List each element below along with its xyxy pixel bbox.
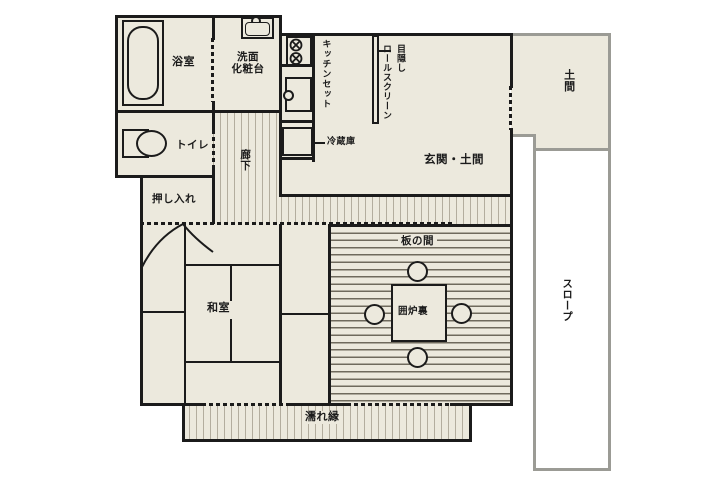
tatami-line-h2	[184, 361, 280, 363]
wall-kitchen-shelf3	[281, 157, 315, 160]
label-screen-line1: 目隠し	[393, 44, 407, 120]
label-nureen: 濡れ縁	[302, 411, 343, 424]
fridge-pointer-line	[313, 142, 325, 144]
label-slope: スロープ	[561, 278, 573, 322]
wall-bath-toilet	[115, 110, 281, 113]
opening-nureen-west	[202, 403, 288, 406]
doma-step-edge	[533, 148, 608, 151]
opening-nureen-east	[347, 403, 450, 406]
label-irori: 囲炉裏	[398, 307, 428, 318]
stove-burner-icon	[289, 38, 303, 66]
nureen-border-left	[182, 404, 185, 442]
label-toilet: トイレ	[176, 139, 209, 151]
label-vanity-line1: 洗面	[226, 51, 270, 63]
doma-outline-top	[511, 33, 611, 36]
refrigerator-icon	[282, 127, 313, 156]
slope-landing	[513, 136, 533, 150]
slope-outline-bottom	[533, 468, 611, 471]
label-washitsu: 和室	[204, 302, 233, 315]
sink-faucet-icon	[283, 90, 294, 101]
label-doma: 土間	[562, 69, 575, 92]
nureen-border-bottom	[182, 439, 472, 442]
tatami-line-v2b	[230, 319, 232, 362]
label-closet: 押し入れ	[152, 193, 196, 205]
step-strip-floor	[281, 197, 510, 225]
wall-corridor-right	[279, 33, 282, 197]
tatami-line-h4	[281, 313, 328, 315]
wall-closet-right	[212, 166, 215, 224]
label-corridor: 廊下	[239, 149, 251, 171]
floor-plan: 浴室 洗面 化粧台 トイレ 押し入れ 廊下 キッチンセット 冷蔵庫 目隠し ロー…	[0, 0, 720, 480]
seat-cushion-icon	[364, 304, 385, 325]
door-swing-icon	[138, 220, 218, 274]
label-vanity-line2: 化粧台	[226, 63, 270, 75]
wall-stub-213-top	[212, 15, 215, 40]
label-fridge: 冷蔵庫	[327, 137, 356, 147]
wall-stub-213-mid	[212, 101, 215, 131]
wall-bottom-b	[288, 403, 347, 406]
washbasin-bowl	[245, 22, 270, 36]
nureen-border-right	[469, 404, 472, 442]
slope-outline-left	[533, 134, 536, 468]
seat-cushion-icon	[407, 261, 428, 282]
wall-kitchen-shelf2	[281, 120, 315, 123]
seat-cushion-icon	[451, 303, 472, 324]
toilet-icon	[136, 130, 167, 157]
label-roll-screen: 目隠し ロールスクリーン	[379, 44, 407, 120]
wall-bottom-a	[140, 403, 202, 406]
wall-right-lower	[510, 128, 513, 406]
doma-slope-outline-right	[608, 33, 611, 471]
label-itanoma: 板の間	[398, 235, 437, 247]
label-screen-line2: ロールスクリーン	[379, 44, 393, 120]
label-bathroom: 浴室	[172, 56, 195, 69]
wall-right-upper	[510, 33, 513, 88]
bathtub-inner	[127, 26, 159, 100]
wall-itanoma-left	[328, 224, 331, 406]
slope-landing-top	[513, 134, 536, 137]
label-vanity: 洗面 化粧台	[226, 51, 270, 75]
label-kitchen: キッチンセット	[320, 39, 330, 109]
wall-bottom-c	[450, 403, 513, 406]
opening-toilet-door	[212, 130, 215, 168]
tatami-line-h3	[140, 311, 184, 313]
wall-washitsu-right	[279, 224, 282, 406]
opening-bathroom-door	[211, 38, 214, 102]
wall-toilet-bottom	[115, 175, 215, 178]
wall-genkan-bottom	[279, 194, 510, 197]
wall-left-lower	[140, 175, 143, 406]
doma-floor	[511, 34, 610, 150]
label-genkan: 玄関・土間	[424, 153, 484, 166]
roll-screen-icon	[372, 35, 379, 124]
tatami-line-v2a	[230, 265, 232, 301]
wall-left-upper	[115, 15, 118, 178]
seat-cushion-icon	[407, 347, 428, 368]
opening-doma-door	[509, 86, 512, 130]
